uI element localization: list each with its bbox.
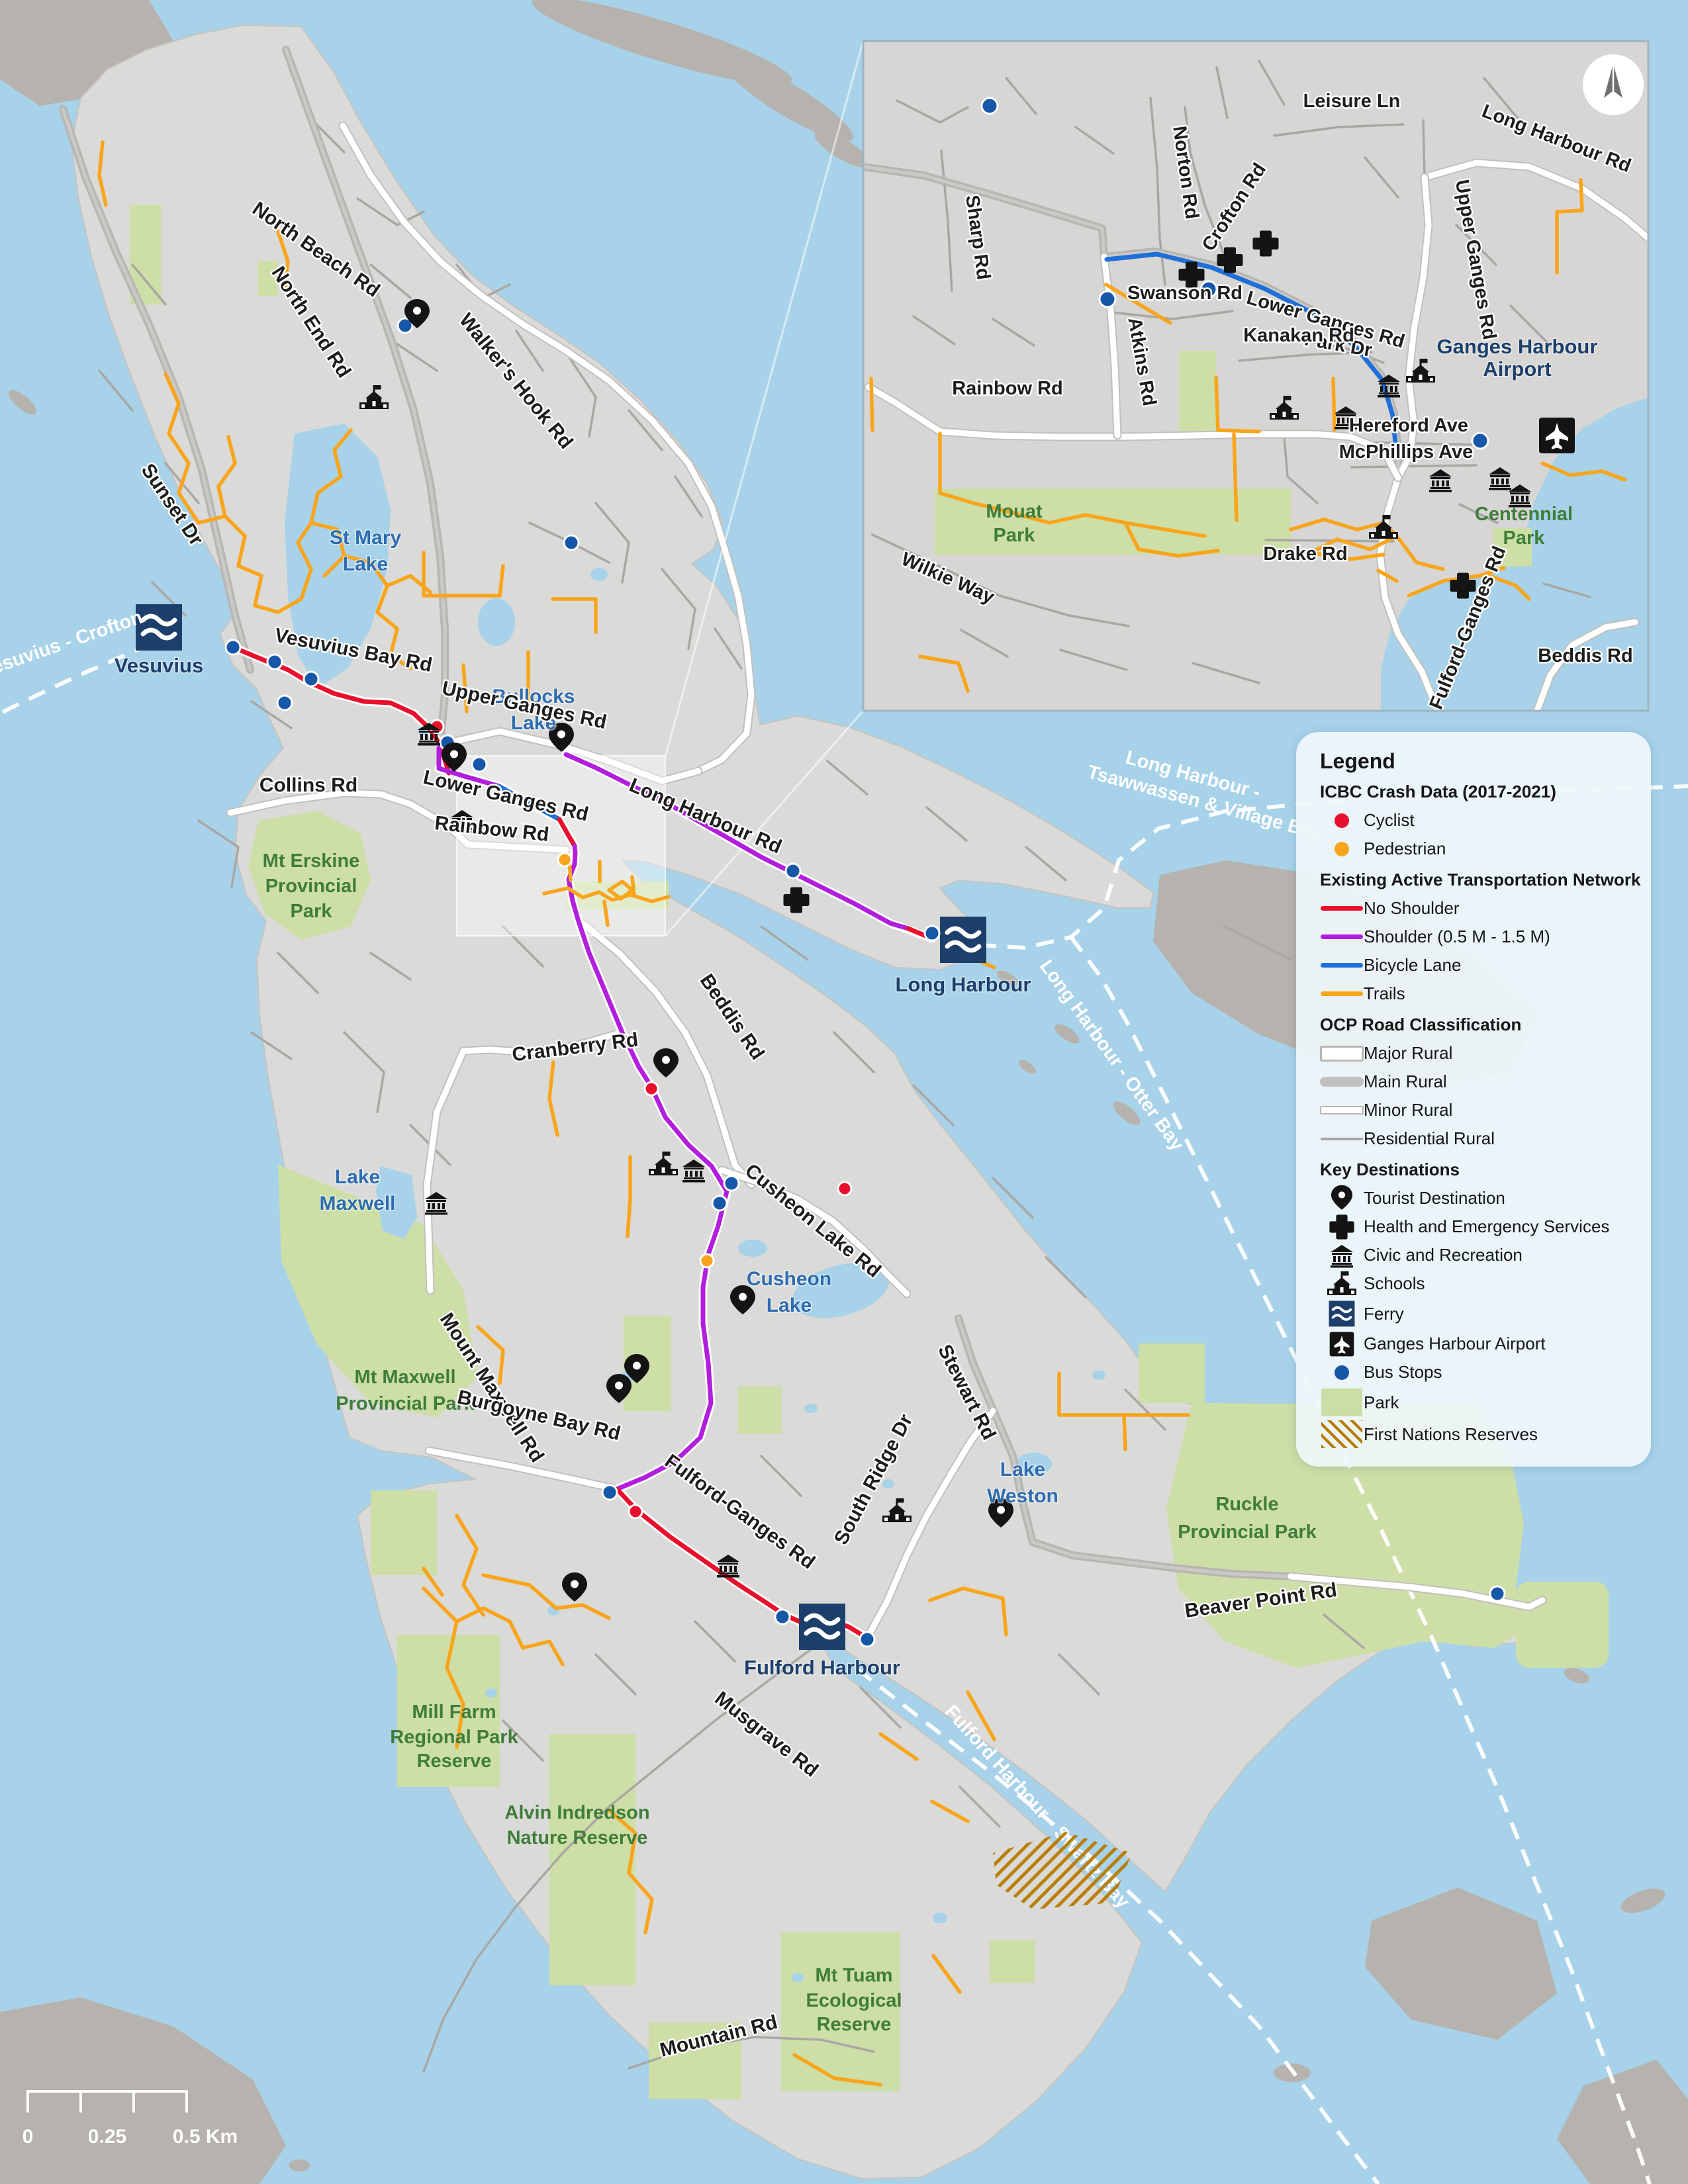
pedestrian-dot-icon xyxy=(1335,842,1349,856)
civic-icon xyxy=(1328,1242,1356,1269)
label-centennial-park: Centennial xyxy=(1475,504,1573,525)
label-cusheon-lake: Lake xyxy=(767,1295,812,1316)
legend-item-trails: Trails xyxy=(1320,979,1651,1008)
label-swanson-rd: Swanson Rd xyxy=(1127,283,1243,304)
pedestrian-crash-icon xyxy=(700,1254,714,1267)
cyclist-crash-icon xyxy=(629,1505,642,1518)
cyclist-dot-icon xyxy=(1335,813,1349,828)
bus-stop-dot-icon xyxy=(1335,1365,1349,1380)
legend-residential-rural-label: Residential Rural xyxy=(1364,1128,1495,1149)
label-mt-tuam: Ecological xyxy=(806,1990,902,2011)
legend-item-health: Health and Emergency Services xyxy=(1320,1212,1651,1241)
bus-stop-icon xyxy=(775,1610,790,1624)
scale-zero: 0 xyxy=(23,2126,34,2148)
legend-network-header: Existing Active Transportation Network xyxy=(1320,870,1651,890)
label-ganges-airport: Airport xyxy=(1483,357,1551,381)
label-inset-beddis-rd: Beddis Rd xyxy=(1538,645,1632,666)
label-collins-rd: Collins Rd xyxy=(259,774,357,796)
legend-item-minor-rural: Minor Rural xyxy=(1320,1096,1651,1124)
legend-health-label: Health and Emergency Services xyxy=(1364,1216,1609,1237)
legend-item-shoulder: Shoulder (0.5 M - 1.5 M) xyxy=(1320,923,1651,951)
label-ruckle-park: Ruckle xyxy=(1215,1494,1278,1515)
bus-stop-icon xyxy=(1472,433,1488,449)
airport-icon xyxy=(1329,1332,1354,1357)
legend-trails-label: Trails xyxy=(1364,983,1405,1004)
label-vesuvius: Vesuvius xyxy=(115,654,203,677)
legend-civic-label: Civic and Recreation xyxy=(1364,1245,1523,1265)
no-shoulder-line-icon xyxy=(1321,906,1363,911)
label-mill-farm: Reserve xyxy=(417,1751,492,1772)
label-fulford-harbour: Fulford Harbour xyxy=(744,1656,900,1679)
legend-pedestrian-label: Pedestrian xyxy=(1364,839,1446,859)
pedestrian-crash-icon xyxy=(558,853,571,866)
cyclist-crash-icon xyxy=(838,1182,851,1195)
bus-stop-icon xyxy=(925,926,939,940)
trails-line-icon xyxy=(1321,991,1363,996)
bus-stop-icon xyxy=(860,1632,874,1647)
label-mt-erskine-park: Mt Erskine xyxy=(263,850,360,872)
legend-item-main-rural: Main Rural xyxy=(1320,1068,1651,1096)
legend-ocp-header: OCP Road Classification xyxy=(1320,1015,1651,1035)
label-hereford-ave: Hereford Ave xyxy=(1349,415,1468,436)
bus-stop-icon xyxy=(226,640,240,655)
park-swatch-icon xyxy=(1321,1388,1362,1416)
minor-rural-swatch-icon xyxy=(1320,1106,1364,1115)
scale-half: 0.5 Km xyxy=(173,2126,238,2148)
label-centennial-park: Park xyxy=(1503,527,1546,549)
ferry-icon xyxy=(1329,1300,1355,1327)
legend-bicycle-lane-label: Bicycle Lane xyxy=(1364,955,1461,976)
legend-tourist-label: Tourist Destination xyxy=(1364,1188,1505,1208)
legend-item-civic: Civic and Recreation xyxy=(1320,1241,1651,1269)
label-ganges-airport: Ganges Harbour xyxy=(1437,335,1598,358)
major-rural-swatch-icon xyxy=(1320,1046,1364,1062)
bus-stop-icon xyxy=(724,1176,739,1191)
label-leisure-ln: Leisure Ln xyxy=(1303,91,1401,112)
label-kanakan-rd: Kanakan Rd xyxy=(1243,325,1354,346)
main-rural-swatch-icon xyxy=(1320,1077,1364,1087)
label-mt-tuam: Mt Tuam xyxy=(815,1965,892,1986)
label-mt-maxwell-park: Provincial Park xyxy=(336,1393,475,1414)
first-nations-swatch-icon xyxy=(1321,1420,1362,1448)
bus-stop-icon xyxy=(1490,1586,1505,1601)
label-lake-weston: Lake xyxy=(1000,1459,1045,1480)
legend-item-bus-stops: Bus Stops xyxy=(1320,1358,1651,1387)
label-mill-farm: Regional Park xyxy=(390,1727,518,1748)
legend-item-ferry: Ferry xyxy=(1320,1298,1651,1330)
legend-schools-label: Schools xyxy=(1364,1273,1425,1294)
label-mt-erskine-park: Provincial xyxy=(265,876,357,897)
label-inset-rainbow-rd: Rainbow Rd xyxy=(952,378,1063,399)
legend-item-pedestrian: Pedestrian xyxy=(1320,835,1651,863)
label-cusheon-lake: Cusheon xyxy=(747,1268,831,1290)
shoulder-line-icon xyxy=(1321,934,1363,939)
legend-destinations-header: Key Destinations xyxy=(1320,1160,1651,1180)
bus-stop-icon xyxy=(304,672,318,686)
label-st-mary-lake: St Mary xyxy=(330,527,402,549)
label-mt-maxwell-park: Mt Maxwell xyxy=(354,1367,455,1388)
legend-item-tourist: Tourist Destination xyxy=(1320,1184,1651,1212)
legend-panel: Legend ICBC Crash Data (2017-2021) Cycli… xyxy=(1296,732,1651,1467)
label-alvin-indredson: Nature Reserve xyxy=(507,1827,648,1848)
legend-crash-header: ICBC Crash Data (2017-2021) xyxy=(1320,782,1651,802)
bus-stop-icon xyxy=(277,696,292,710)
legend-ferry-label: Ferry xyxy=(1364,1304,1404,1324)
legend-item-major-rural: Major Rural xyxy=(1320,1039,1651,1068)
bus-stop-icon xyxy=(267,655,282,669)
legend-shoulder-label: Shoulder (0.5 M - 1.5 M) xyxy=(1364,927,1550,947)
legend-cyclist-label: Cyclist xyxy=(1364,810,1415,831)
bus-stop-icon xyxy=(982,98,998,114)
tourist-pin-icon xyxy=(1327,1184,1356,1213)
legend-item-cyclist: Cyclist xyxy=(1320,806,1651,835)
north-arrow-icon xyxy=(1583,54,1644,115)
legend-no-shoulder-label: No Shoulder xyxy=(1364,898,1460,919)
bus-stop-icon xyxy=(472,757,487,772)
legend-title: Legend xyxy=(1320,749,1651,774)
label-st-mary-lake: Lake xyxy=(343,553,388,575)
label-lake-weston: Weston xyxy=(987,1485,1058,1507)
bus-stop-icon xyxy=(564,535,579,550)
legend-item-no-shoulder: No Shoulder xyxy=(1320,894,1651,923)
bicycle-lane-line-icon xyxy=(1321,963,1363,968)
legend-item-park: Park xyxy=(1320,1387,1651,1418)
inset-map: Leisure Ln Long Harbour Rd Upper Ganges … xyxy=(863,41,1648,712)
legend-item-schools: Schools xyxy=(1320,1269,1651,1298)
map-page: North Beach Rd North End Rd Walker's Hoo… xyxy=(0,0,1688,2184)
legend-item-first-nations: First Nations Reserves xyxy=(1320,1418,1651,1450)
label-alvin-indredson: Alvin Indredson xyxy=(504,1802,649,1823)
bus-stop-icon xyxy=(712,1196,727,1210)
label-lake-maxwell: Maxwell xyxy=(319,1193,395,1214)
legend-item-bicycle-lane: Bicycle Lane xyxy=(1320,951,1651,979)
ferry-icon-long-harbour xyxy=(940,917,986,963)
legend-minor-rural-label: Minor Rural xyxy=(1364,1100,1452,1120)
residential-rural-swatch-icon xyxy=(1321,1138,1363,1140)
school-icon xyxy=(1326,1270,1358,1298)
label-mill-farm: Mill Farm xyxy=(412,1702,496,1723)
label-mouat-park: Park xyxy=(994,525,1036,546)
scale-quarter: 0.25 xyxy=(88,2126,126,2148)
label-lake-maxwell: Lake xyxy=(335,1166,380,1188)
legend-item-residential-rural: Residential Rural xyxy=(1320,1124,1651,1153)
label-drake-rd: Drake Rd xyxy=(1263,543,1347,565)
ferry-icon-fulford xyxy=(799,1604,845,1650)
legend-first-nations-label: First Nations Reserves xyxy=(1364,1424,1538,1445)
bus-stop-icon xyxy=(1100,291,1115,307)
airport-icon xyxy=(1539,418,1575,453)
bus-stop-icon xyxy=(786,864,800,878)
label-ruckle-park: Provincial Park xyxy=(1178,1522,1317,1543)
legend-park-label: Park xyxy=(1364,1392,1399,1413)
label-long-harbour: Long Harbour xyxy=(896,973,1031,996)
label-mcphillips-ave: McPhillips Ave xyxy=(1339,441,1474,463)
legend-item-airport: Ganges Harbour Airport xyxy=(1320,1330,1651,1358)
bus-stop-icon xyxy=(602,1485,617,1500)
label-mt-tuam: Reserve xyxy=(817,2014,892,2035)
label-mouat-park: Mouat xyxy=(986,501,1043,522)
legend-major-rural-label: Major Rural xyxy=(1364,1043,1452,1064)
label-mt-erskine-park: Park xyxy=(291,901,333,922)
cyclist-crash-icon xyxy=(645,1082,658,1095)
legend-bus-stops-label: Bus Stops xyxy=(1364,1362,1442,1383)
legend-main-rural-label: Main Rural xyxy=(1364,1071,1447,1092)
legend-airport-label: Ganges Harbour Airport xyxy=(1364,1334,1546,1354)
health-cross-icon xyxy=(1328,1213,1356,1241)
